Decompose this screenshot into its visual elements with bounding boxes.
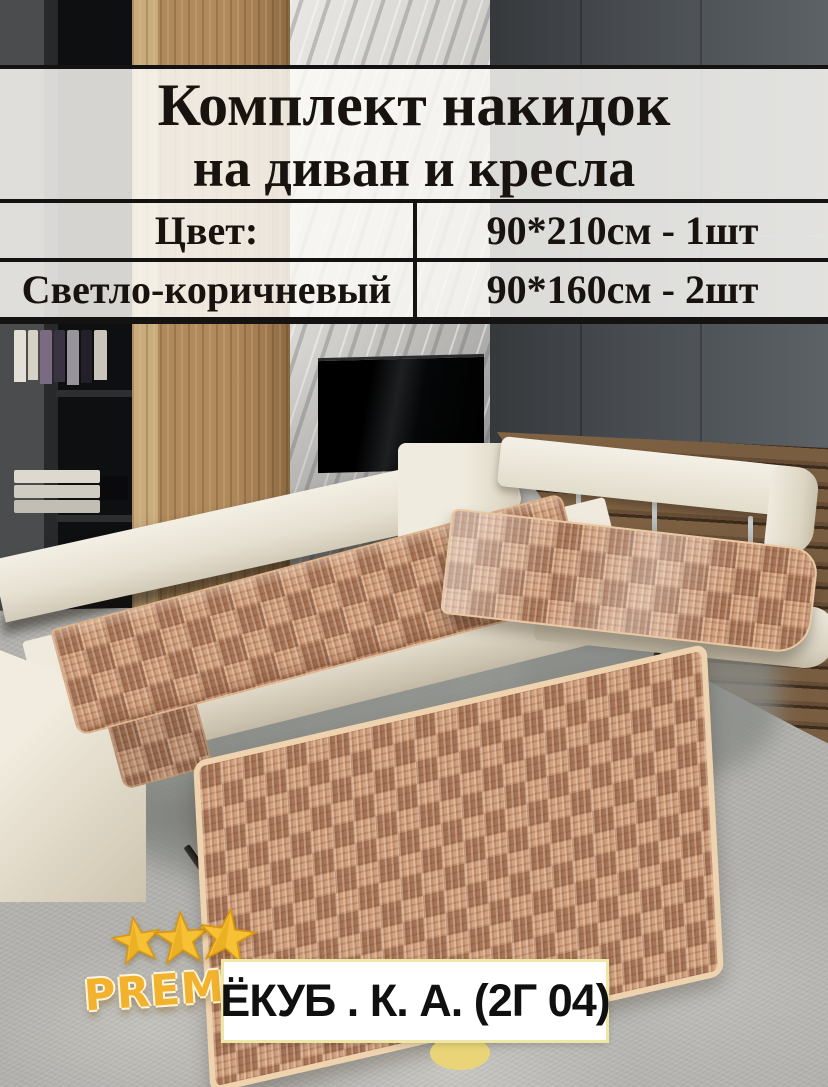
shelf-box [100, 476, 128, 500]
yellow-tag [430, 1036, 490, 1070]
spec-cell-size-1: 90*210см - 1шт [413, 203, 828, 258]
book-spine [67, 330, 79, 385]
book-stack [14, 470, 100, 483]
book-spine [81, 330, 92, 383]
product-title-line1: Комплект накидок [158, 71, 671, 139]
spec-row: Цвет: 90*210см - 1шт [0, 203, 828, 258]
spec-cell-color-value: Светло-коричневый [0, 262, 413, 317]
book-stack [14, 500, 100, 513]
book-spine [54, 330, 65, 382]
book-stack [14, 485, 100, 498]
spec-cell-size-2: 90*160см - 2шт [413, 262, 828, 317]
seller-label: ЁКУБ . К. А. (2Г 04) [224, 962, 606, 1040]
star-icon [194, 904, 260, 970]
book-spine [14, 330, 26, 382]
shelf-divider [56, 390, 132, 397]
book-spine [94, 330, 107, 380]
info-panel: Комплект накидок на диван и кресла Цвет:… [0, 65, 828, 324]
product-title-line2: на диван и кресла [193, 139, 635, 197]
product-card: Комплект накидок на диван и кресла Цвет:… [0, 0, 828, 1087]
shelf-divider [56, 515, 132, 522]
book-spine [28, 330, 38, 380]
book-spine [40, 330, 52, 384]
spec-cell-color-header: Цвет: [0, 203, 413, 258]
product-title: Комплект накидок на диван и кресла [0, 69, 828, 203]
spec-row: Светло-коричневый 90*160см - 2шт [0, 258, 828, 317]
